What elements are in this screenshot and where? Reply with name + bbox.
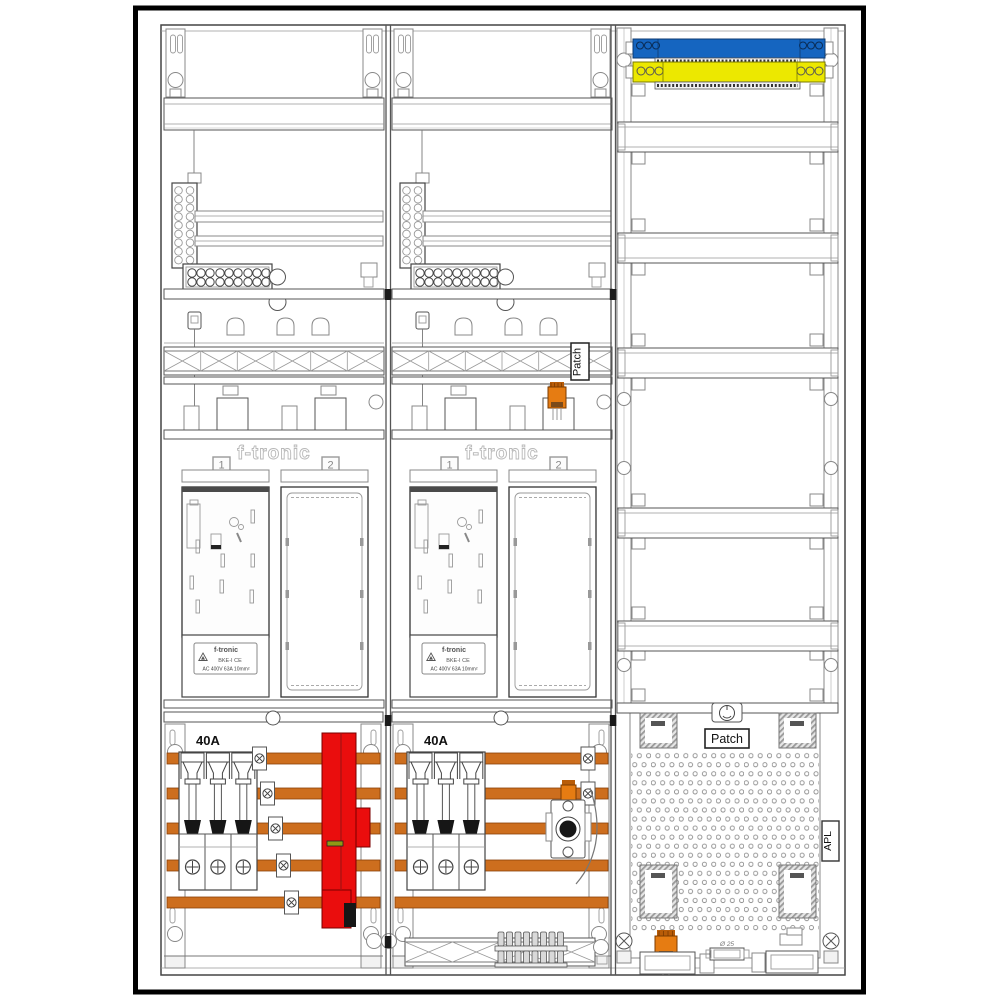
knockout-diameter-label: Ø 25 [719, 941, 734, 948]
patch-label-lower-text: Patch [711, 732, 743, 746]
switch-indicator [327, 841, 343, 846]
shelf-row-1 [618, 122, 838, 152]
shelf-row-4 [618, 508, 838, 538]
hatched-cutout [640, 713, 677, 748]
shelf-row-5 [618, 621, 838, 651]
shelf-row-2 [618, 233, 838, 263]
switch-terminal-cover [344, 903, 356, 927]
gland-hole [560, 821, 577, 838]
stepped-box [780, 934, 802, 945]
shelf-row-3 [618, 348, 838, 378]
apl-label-text: APL [822, 831, 834, 851]
meter-cabinet-drawing: f-tronic 1 2 [0, 0, 1000, 1000]
cabinet-schematic: f-tronic 1 2 [0, 0, 1000, 1000]
apl-patch-panel: Patch APL [617, 703, 839, 958]
hatched-cutout [779, 865, 816, 918]
patch-label-upper-text: Patch [572, 348, 584, 376]
hatched-cutout [640, 865, 677, 918]
hatched-cutout [779, 713, 816, 748]
